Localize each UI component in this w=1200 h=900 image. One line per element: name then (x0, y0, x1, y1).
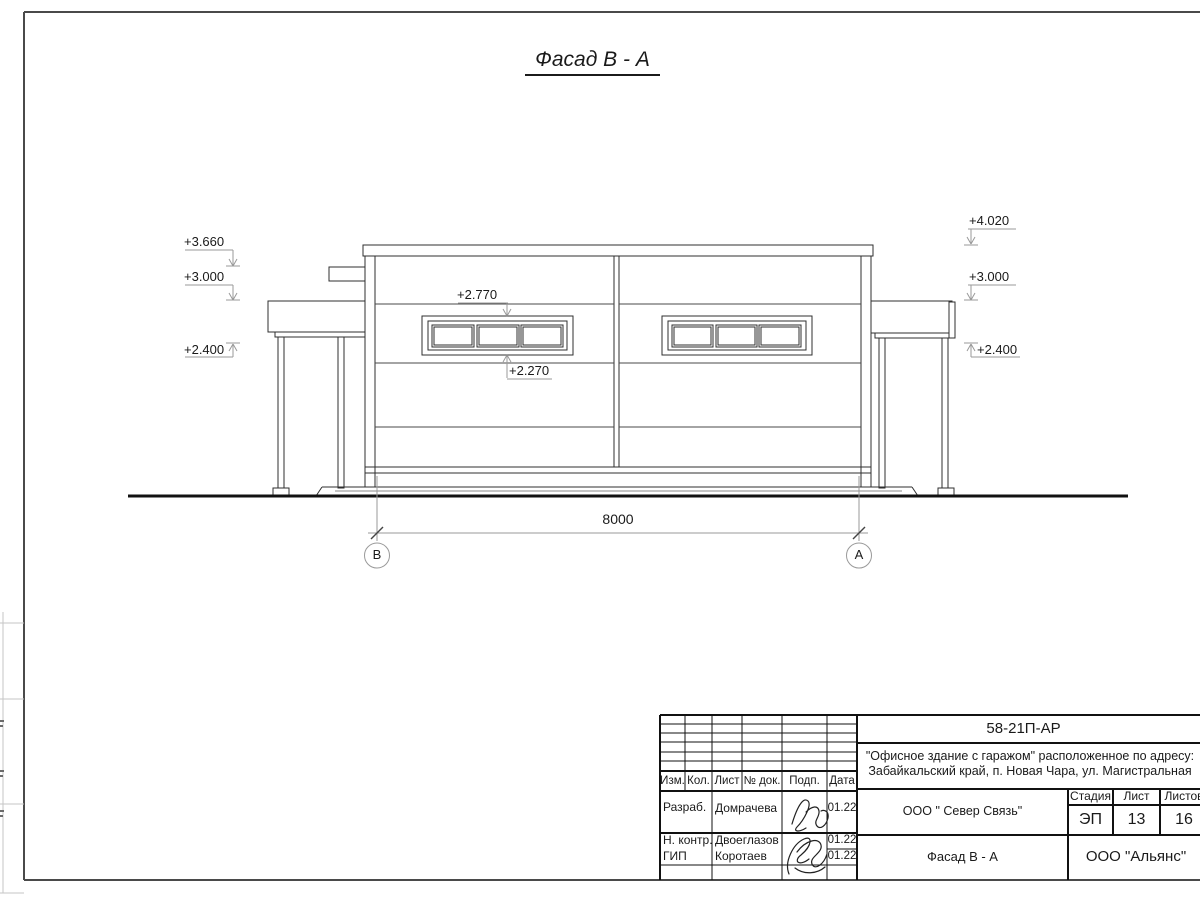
sheets-header: Листов (1160, 789, 1200, 805)
elevation-label-left-middle: +3.000 (184, 270, 224, 284)
stage-value: ЭП (1068, 805, 1113, 835)
project-address-line2: Забайкальский край, п. Новая Чара, ул. М… (858, 764, 1200, 779)
window-top-elevation-label: +2.770 (457, 288, 497, 302)
row-date-gip: 01.22 (827, 848, 857, 865)
sheets-value: 16 (1160, 805, 1200, 835)
col-header-podp: Подп. (782, 772, 827, 790)
signature-strokes (788, 800, 829, 874)
signature-gip (788, 838, 827, 874)
right-window (662, 316, 812, 355)
view-name: Фасад В - А (857, 835, 1068, 880)
sheet-value: 13 (1113, 805, 1160, 835)
right-canopy (871, 301, 955, 496)
elevation-label-right-lower: +2.400 (977, 343, 1017, 357)
project-address-line1: "Офисное здание с гаражом" расположенное… (858, 749, 1200, 764)
col-header-data: Дата (827, 772, 857, 790)
elevation-label-left-upper: +3.660 (184, 235, 224, 249)
axis-bubble-a: А (847, 548, 871, 563)
row-name-razrab: Домрачева (715, 800, 781, 818)
elevation-label-right-upper: +4.020 (969, 214, 1009, 228)
row-name-gip: Коротаев (715, 848, 783, 865)
col-header-doc: № док. (742, 772, 782, 790)
dimension-value: 8000 (570, 512, 666, 527)
row-name-nkontr: Двоеглазов (715, 832, 783, 849)
col-header-kol: Кол. (685, 772, 712, 790)
left-window (422, 316, 573, 355)
design-org: ООО "Альянс" (1068, 835, 1200, 880)
signature-razrab (792, 800, 828, 831)
row-role-gip: ГИП (663, 848, 713, 865)
left-canopy (268, 267, 365, 496)
elevation-label-right-middle: +3.000 (969, 270, 1009, 284)
sheet-header: Лист (1113, 789, 1160, 805)
window-bottom-elevation-label: +2.270 (509, 364, 549, 378)
contractor-company: ООО " Север Связь" (859, 791, 1066, 833)
row-date-razrab: 01.22 (827, 800, 857, 816)
doc-code: 58-21П-АР (857, 717, 1190, 741)
row-date-nkontr: 01.22 (827, 832, 857, 849)
elevation-label-left-lower: +2.400 (184, 343, 224, 357)
row-role-nkontr: Н. контр. (663, 832, 713, 849)
building-outline (363, 245, 873, 487)
adjacent-sheet-fragment (0, 612, 24, 893)
col-header-izm: Изм. (660, 772, 685, 790)
row-role-razrab: Разраб. (663, 798, 711, 818)
drawing-title: Фасад В - А (525, 48, 660, 76)
drawing-sheet: Фасад В - А +3.660 +3.000 +2.400 +4.020 … (0, 0, 1200, 900)
axis-bubble-b: В (365, 548, 389, 563)
stage-header: Стадия (1068, 789, 1113, 805)
col-header-list: Лист (712, 772, 742, 790)
